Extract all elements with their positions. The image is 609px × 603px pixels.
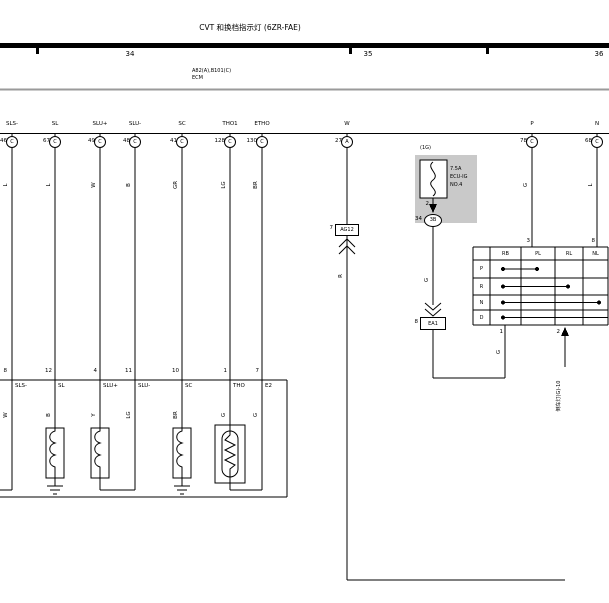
wire-color-label: G (423, 269, 431, 291)
grid-tick (36, 48, 39, 54)
switch-col-header: RB (490, 251, 521, 257)
ecm-pin-name: THO1 (214, 121, 246, 128)
switch-top-pin: 3 (510, 238, 530, 245)
trans-pin-number: 12 (30, 368, 52, 375)
switch-col-header: RL (555, 251, 583, 257)
fuse-icon (420, 160, 447, 198)
wire-color-label: B (45, 404, 53, 426)
solenoid-coil-icon (46, 428, 64, 478)
wire-color-label: G (522, 174, 530, 196)
grid-bar (0, 43, 609, 48)
junction-pin-number: 8 (398, 319, 418, 326)
ecm-pin-name: SC (166, 121, 198, 128)
trans-terminal-name: E2 (265, 383, 272, 390)
fuse-name: NO.4 (450, 182, 462, 188)
ecm-label: ECM (192, 75, 203, 81)
junction-connector-box: EA1 (420, 317, 446, 330)
coil-feed-wires (55, 380, 182, 428)
grid-number: 35 (358, 50, 378, 58)
trans-terminal-name: SLU- (138, 383, 150, 390)
connector-pin-number: 34 (402, 216, 422, 223)
slu-loop-wire (100, 380, 135, 490)
wire-color-label: LG (220, 174, 228, 196)
ground-icon (174, 478, 190, 494)
ecm-pin-number: 67 (28, 138, 50, 145)
wire-color-label: W (2, 404, 10, 426)
switch-row-label: R (473, 284, 490, 290)
pin-connector-circle: C (176, 136, 188, 148)
trans-terminal-name: SLS- (15, 383, 27, 390)
trans-pin-number: 11 (110, 368, 132, 375)
trans-pin-number: 7 (237, 368, 259, 375)
switch-top-pin: 8 (575, 238, 595, 245)
ecm-pin-name: ETHO (246, 121, 278, 128)
wire-color-label: BR (252, 174, 260, 196)
solenoid-coil-icon (91, 428, 109, 478)
wire-color-label: BR (172, 404, 180, 426)
ecm-pin-number: 128 (203, 138, 225, 145)
ecm-pin-name: W (331, 121, 363, 128)
pin-connector-circle: C (94, 136, 106, 148)
ecm-pin-name: SLU+ (84, 121, 116, 128)
wire-color-label: Y (90, 404, 98, 426)
connector-oval: 3B (424, 214, 442, 227)
ecm-pin-number: 48 (108, 138, 130, 145)
trans-pin-number: 1 (205, 368, 227, 375)
wire-color-label: GR (172, 174, 180, 196)
wire-color-label: G (495, 341, 503, 363)
ecm-connector-codes: A82(A),B101(C) (192, 68, 231, 74)
junction-pin-number: 7 (313, 225, 333, 232)
trans-pin-number: 10 (157, 368, 179, 375)
wiring-diagram-page: CVT 和换档指示灯 (6ZR-FAE) 34 35 36 A82(A),B10… (0, 0, 609, 603)
sls-internal-wire (0, 380, 12, 490)
switch-col-header: PL (521, 251, 555, 257)
pin-connector-circle: C (256, 136, 268, 148)
fuse-out-pin-number: 2 (409, 201, 429, 208)
pin-connector-circle: C (129, 136, 141, 148)
ecm-pin-number: 27 (320, 138, 342, 145)
ecm-pin-number: 49 (73, 138, 95, 145)
grid-tick (486, 48, 489, 54)
wire-color-label: W (90, 174, 98, 196)
ecm-pin-name: N (581, 121, 609, 128)
junction-connector-box: AG12 (335, 224, 359, 236)
tho-e2-loop-wire (230, 380, 262, 490)
fuse-rating: 7.5A (450, 166, 461, 172)
switch-row-label: P (473, 266, 490, 272)
backup-light-offpage-ref: 倒车灯(G)-10 (555, 366, 563, 426)
p-n-wires (532, 147, 597, 247)
pin-connector-circle: C (591, 136, 603, 148)
wire-color-label: R (337, 265, 345, 287)
wire-color-label: LG (125, 404, 133, 426)
wire-color-label: L (587, 174, 595, 196)
wire-color-label: G (220, 404, 228, 426)
page-title: CVT 和换档指示灯 (6ZR-FAE) (170, 22, 330, 33)
ecm-pin-name: SLU- (119, 121, 151, 128)
fuse-connector-code: (1G) (420, 145, 431, 151)
pin-connector-circle: C (49, 136, 61, 148)
trans-terminal-name: SLU+ (103, 383, 118, 390)
switch-bottom-pin: 2 (540, 329, 560, 336)
ecm-pin-number: 68 (570, 138, 592, 145)
grid-tick (349, 48, 352, 54)
pin-connector-circle: A (341, 136, 353, 148)
ecm-pin-name: SLS- (0, 121, 28, 128)
ecm-pin-number: 130 (235, 138, 257, 145)
wire-color-label: B (125, 174, 133, 196)
wire-color-label: L (45, 174, 53, 196)
arrow-up-icon (561, 327, 569, 336)
ecm-pin-name: SL (39, 121, 71, 128)
switch-row-label: N (473, 300, 490, 306)
trans-terminal-name: SL (58, 383, 65, 390)
ground-icon (47, 478, 63, 494)
ecm-pin-number: 41 (155, 138, 177, 145)
pin-connector-circle: C (6, 136, 18, 148)
trans-terminal-name: SC (185, 383, 192, 390)
pin-connector-circle: C (224, 136, 236, 148)
fuse-name: ECU-IG (450, 174, 467, 180)
trans-pin-number: 4 (75, 368, 97, 375)
wire-color-label: L (2, 174, 10, 196)
switch-row-label: D (473, 315, 490, 321)
switch-bottom-pin: 1 (483, 329, 503, 336)
trans-terminal-name: THO (233, 383, 245, 390)
ecm-pin-number: 78 (505, 138, 527, 145)
solenoid-coil-icon (173, 428, 191, 478)
switch-col-header: NL (583, 251, 608, 257)
temp-sensor-icon (215, 425, 245, 483)
wiring-lines (0, 0, 609, 603)
pin-connector-circle: C (526, 136, 538, 148)
grid-number: 34 (120, 50, 140, 58)
transmission-box (0, 380, 287, 497)
grid-number: 36 (589, 50, 609, 58)
wire-color-label: G (252, 404, 260, 426)
trans-pin-number: 8 (0, 368, 7, 375)
ecm-pin-name: P (516, 121, 548, 128)
